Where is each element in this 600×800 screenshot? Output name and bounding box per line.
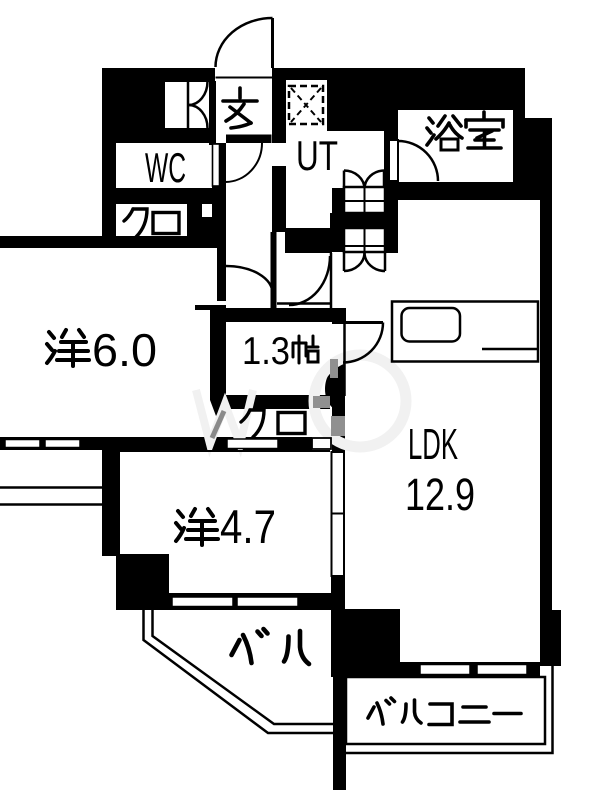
svg-text:6.0: 6.0 <box>92 324 157 376</box>
svg-text:4.7: 4.7 <box>220 500 276 553</box>
svg-text:WC: WC <box>145 144 186 191</box>
svg-text:12.9: 12.9 <box>405 469 475 520</box>
svg-text:1.3: 1.3 <box>242 330 290 373</box>
svg-text:UT: UT <box>296 132 338 179</box>
svg-text:LDK: LDK <box>408 420 458 469</box>
